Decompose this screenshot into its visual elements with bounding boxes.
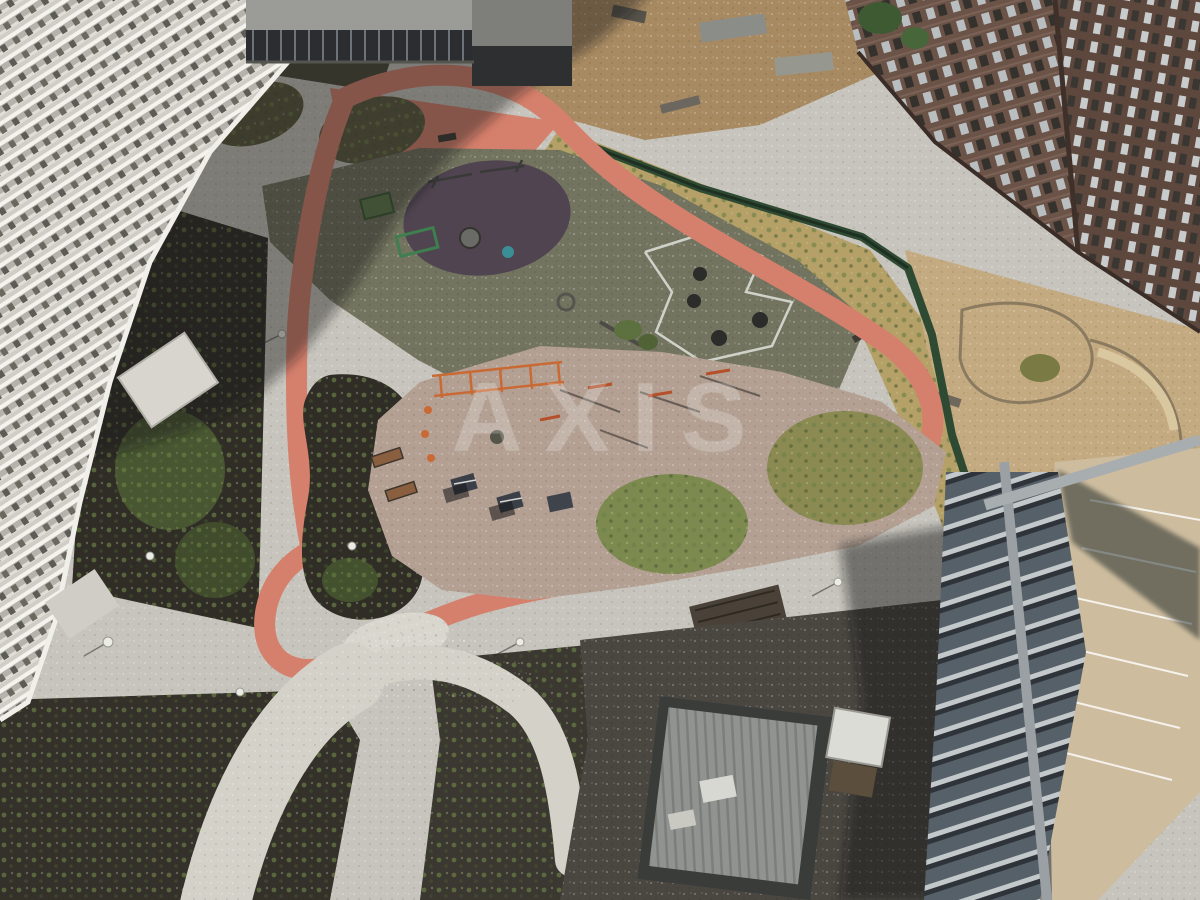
tree [858,2,902,34]
planting-patch [1020,354,1060,382]
green-mound-texture [767,411,923,525]
glass-storefront [246,30,474,62]
roof-band [472,0,572,46]
aerial-photo: AXIS [0,0,1200,900]
post-topper [490,430,504,444]
shrubs [175,522,255,598]
trampoline [687,294,701,308]
courtyard-scene [0,0,1200,900]
bush [614,320,642,340]
trampoline [693,267,707,281]
container-body [826,708,890,767]
green-mound-texture [596,474,748,574]
shrubs [322,558,378,602]
dark-facade [472,46,572,86]
tree [901,27,929,49]
trampoline [752,312,768,328]
roof-band [246,0,474,30]
bush [638,334,658,350]
building-bottom-right [924,440,1200,900]
trampoline [711,330,727,346]
carousel [460,228,480,248]
play-element-teal [502,246,514,258]
substation-hut [637,696,832,900]
